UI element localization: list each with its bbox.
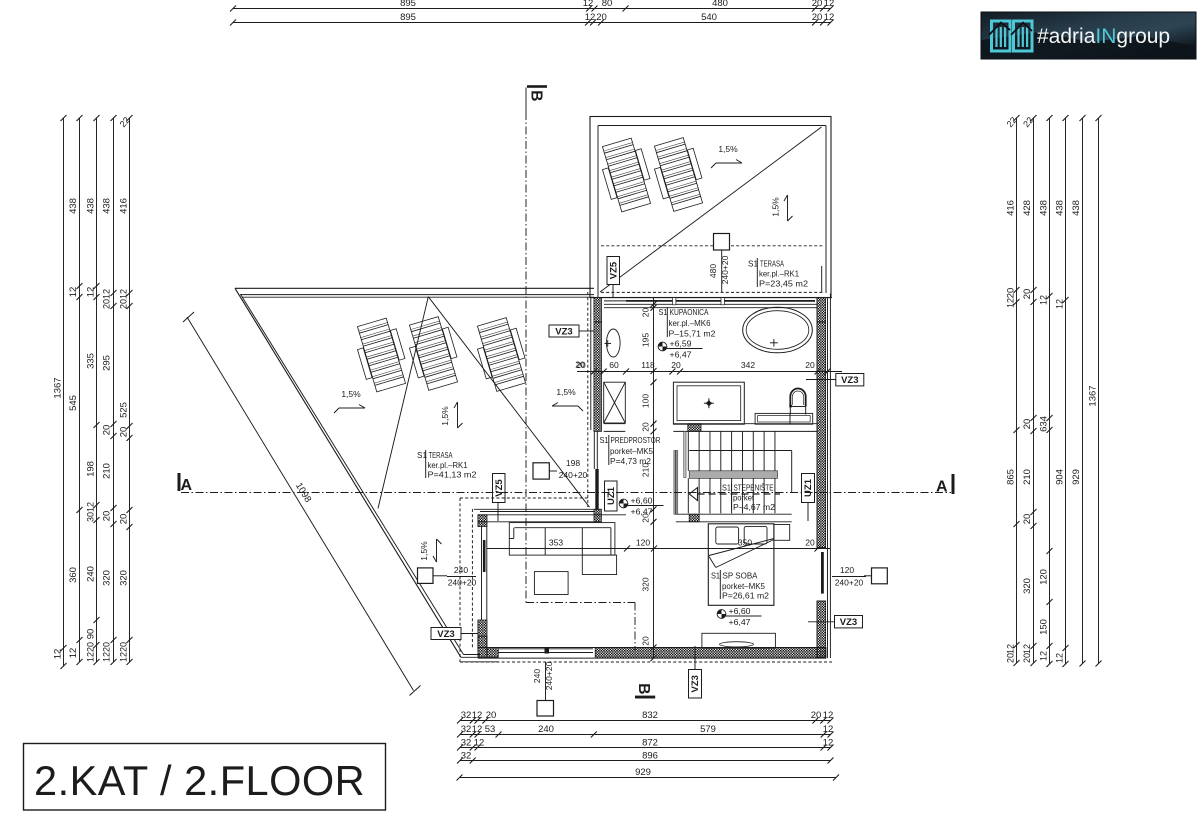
svg-text:210: 210 (1022, 469, 1033, 485)
svg-text:porket–MK5: porket–MK5 (722, 582, 766, 591)
svg-text:120: 120 (1039, 569, 1050, 585)
svg-text:438: 438 (85, 198, 96, 214)
svg-text:20: 20 (576, 360, 586, 370)
svg-text:32: 32 (461, 710, 472, 721)
svg-text:1367: 1367 (52, 377, 63, 398)
svg-text:20: 20 (805, 537, 815, 547)
svg-text:+6,60: +6,60 (631, 496, 653, 506)
svg-text:320: 320 (641, 577, 651, 591)
svg-text:12: 12 (823, 710, 834, 721)
svg-text:+6,60: +6,60 (729, 606, 751, 616)
svg-text:S1: S1 (722, 483, 731, 493)
svg-text:438: 438 (1055, 200, 1066, 216)
svg-text:12: 12 (1039, 295, 1049, 305)
svg-text:865: 865 (1006, 469, 1017, 485)
svg-text:A: A (936, 479, 948, 496)
svg-text:12: 12 (472, 724, 483, 735)
svg-text:20: 20 (641, 422, 651, 432)
svg-text:428: 428 (1022, 200, 1033, 216)
svg-text:12: 12 (1006, 644, 1016, 654)
svg-text:12: 12 (1055, 299, 1065, 309)
svg-text:20: 20 (1006, 653, 1016, 663)
svg-text:12: 12 (85, 287, 96, 298)
svg-text:100: 100 (641, 394, 651, 408)
svg-text:20: 20 (1022, 289, 1033, 300)
svg-text:UZ1: UZ1 (606, 486, 617, 505)
svg-text:20: 20 (102, 425, 113, 436)
svg-text:S1: S1 (711, 571, 720, 581)
svg-text:12: 12 (585, 12, 596, 23)
svg-text:579: 579 (700, 724, 716, 735)
svg-text:12: 12 (1039, 651, 1049, 661)
svg-text:1,5%: 1,5% (419, 541, 429, 561)
svg-text:416: 416 (1006, 200, 1017, 216)
svg-text:12: 12 (85, 502, 95, 512)
svg-text:porket–MK5: porket–MK5 (610, 447, 654, 456)
svg-text:240+20: 240+20 (448, 578, 477, 588)
svg-text:198: 198 (85, 461, 96, 477)
svg-text:UZ1: UZ1 (803, 478, 814, 497)
svg-text:240: 240 (538, 724, 554, 735)
svg-text:#adriaINgroup: #adriaINgroup (1037, 25, 1170, 48)
svg-text:P=4,73 m2: P=4,73 m2 (610, 457, 652, 466)
svg-text:VZ3: VZ3 (841, 375, 858, 386)
svg-text:20: 20 (671, 360, 681, 370)
svg-text:895: 895 (400, 0, 416, 9)
svg-text:KUPAONICA: KUPAONICA (670, 307, 709, 317)
svg-text:240: 240 (454, 565, 468, 575)
svg-text:+6,47: +6,47 (670, 350, 692, 360)
svg-text:ker.pl.–MK6: ker.pl.–MK6 (669, 319, 712, 328)
svg-text:120: 120 (636, 537, 650, 547)
svg-text:80: 80 (602, 0, 613, 9)
svg-text:20: 20 (1022, 653, 1032, 663)
svg-text:480: 480 (708, 264, 718, 278)
svg-text:350: 350 (738, 537, 752, 547)
svg-text:ker.pl.–RK1: ker.pl.–RK1 (759, 270, 800, 279)
svg-text:480: 480 (712, 0, 728, 9)
svg-text:240+20: 240+20 (559, 470, 588, 480)
svg-text:929: 929 (1071, 469, 1082, 485)
svg-text:1367: 1367 (1088, 385, 1099, 406)
svg-text:20: 20 (102, 511, 113, 522)
svg-text:53: 53 (485, 724, 496, 735)
svg-text:+6,59: +6,59 (670, 339, 692, 349)
svg-text:545: 545 (68, 395, 79, 411)
svg-text:32: 32 (461, 724, 472, 735)
svg-text:32: 32 (461, 738, 472, 749)
svg-text:20: 20 (641, 308, 651, 318)
svg-text:90: 90 (85, 629, 96, 640)
svg-text:20: 20 (812, 0, 823, 9)
svg-text:438: 438 (102, 198, 113, 214)
svg-text:832: 832 (642, 710, 658, 721)
svg-text:60: 60 (609, 360, 619, 370)
svg-text:904: 904 (1055, 469, 1066, 485)
svg-text:120: 120 (840, 565, 854, 575)
svg-text:20: 20 (812, 12, 823, 23)
svg-text:2.KAT / 2.FLOOR: 2.KAT / 2.FLOOR (34, 757, 365, 804)
svg-text:PREDPROSTOR: PREDPROSTOR (611, 435, 661, 445)
svg-text:240+20: 240+20 (544, 661, 554, 690)
svg-text:240+20: 240+20 (835, 578, 864, 588)
svg-text:P=23,45 m2: P=23,45 m2 (759, 280, 809, 289)
svg-text:S1: S1 (659, 307, 668, 317)
svg-text:416: 416 (118, 198, 129, 214)
svg-text:VZ3: VZ3 (690, 675, 701, 692)
svg-text:1,5%: 1,5% (556, 387, 576, 397)
svg-text:12: 12 (68, 648, 79, 659)
svg-text:VZ5: VZ5 (494, 479, 505, 497)
svg-text:525: 525 (118, 402, 129, 418)
svg-text:1220: 1220 (85, 642, 95, 662)
svg-text:SP SOBA: SP SOBA (723, 571, 758, 581)
svg-text:20: 20 (118, 427, 129, 438)
svg-text:240: 240 (85, 566, 96, 582)
svg-text:TERASA: TERASA (760, 259, 784, 269)
svg-text:295: 295 (102, 355, 113, 371)
svg-text:150: 150 (1039, 619, 1050, 635)
svg-text:240+20: 240+20 (720, 255, 730, 284)
svg-text:360: 360 (68, 567, 79, 583)
svg-text:1220: 1220 (118, 642, 128, 662)
svg-text:+6,47: +6,47 (631, 507, 653, 517)
svg-text:2012: 2012 (118, 289, 128, 309)
svg-text:P–4,67 m2: P–4,67 m2 (733, 503, 776, 512)
svg-text:B: B (635, 683, 652, 694)
svg-text:320: 320 (102, 570, 113, 586)
svg-text:438: 438 (68, 198, 79, 214)
svg-text:20: 20 (486, 710, 497, 721)
svg-text:20: 20 (118, 514, 129, 525)
svg-text:12: 12 (824, 0, 835, 9)
svg-text:VZ3: VZ3 (555, 326, 572, 337)
svg-text:438: 438 (1071, 200, 1082, 216)
svg-text:540: 540 (701, 12, 717, 23)
svg-text:20: 20 (805, 360, 815, 370)
svg-text:872: 872 (642, 738, 658, 749)
svg-text:P–15,71 m2: P–15,71 m2 (669, 330, 717, 339)
svg-text:342: 342 (741, 360, 755, 370)
svg-text:20: 20 (811, 710, 822, 721)
svg-text:VZ5: VZ5 (608, 261, 619, 279)
svg-text:+6,47: +6,47 (729, 617, 751, 627)
svg-text:32: 32 (461, 751, 472, 762)
svg-text:118: 118 (641, 360, 655, 370)
svg-text:P=41,13 m2: P=41,13 m2 (428, 471, 478, 480)
svg-text:porket: porket (733, 494, 755, 503)
svg-text:12: 12 (472, 710, 483, 721)
svg-text:12: 12 (1006, 298, 1016, 308)
svg-text:VZ3: VZ3 (840, 617, 857, 628)
svg-text:929: 929 (635, 767, 651, 778)
svg-text:P=26,61 m2: P=26,61 m2 (722, 592, 770, 601)
svg-text:S1: S1 (748, 259, 758, 269)
svg-text:20: 20 (1022, 514, 1033, 525)
svg-text:S1: S1 (600, 435, 609, 445)
svg-text:12: 12 (1022, 644, 1032, 654)
svg-text:335: 335 (85, 353, 96, 369)
svg-text:12: 12 (68, 287, 79, 298)
svg-text:320: 320 (118, 570, 129, 586)
svg-text:2012: 2012 (102, 289, 112, 309)
svg-text:1,5%: 1,5% (771, 197, 781, 217)
svg-text:20: 20 (596, 12, 607, 23)
svg-text:240: 240 (532, 669, 542, 683)
svg-text:30: 30 (85, 512, 95, 522)
svg-text:438: 438 (1039, 200, 1050, 216)
svg-text:320: 320 (1022, 578, 1033, 594)
svg-text:198: 198 (566, 458, 580, 468)
svg-text:A: A (181, 477, 193, 494)
svg-text:12: 12 (823, 724, 834, 735)
svg-text:12: 12 (823, 738, 834, 749)
svg-text:1,5%: 1,5% (440, 406, 450, 426)
svg-text:12: 12 (1055, 653, 1065, 663)
svg-text:STEPENIŠTE: STEPENIŠTE (734, 483, 774, 493)
svg-text:1220: 1220 (102, 642, 112, 662)
svg-text:12: 12 (824, 12, 835, 23)
svg-text:1,5%: 1,5% (341, 389, 361, 399)
svg-text:1,5%: 1,5% (718, 144, 738, 154)
svg-text:20: 20 (1022, 419, 1033, 430)
svg-text:895: 895 (400, 12, 416, 23)
svg-text:20: 20 (641, 636, 651, 646)
svg-text:353: 353 (549, 537, 563, 547)
svg-text:ker.pl.–RK1: ker.pl.–RK1 (428, 461, 469, 470)
svg-text:VZ3: VZ3 (437, 629, 454, 640)
svg-text:896: 896 (642, 751, 658, 762)
svg-text:TERASA: TERASA (429, 450, 453, 460)
svg-text:195: 195 (641, 333, 651, 347)
svg-text:210: 210 (102, 463, 113, 479)
svg-text:634: 634 (1039, 416, 1050, 432)
svg-text:20: 20 (1006, 288, 1017, 299)
svg-text:12: 12 (583, 0, 594, 9)
svg-text:12: 12 (474, 738, 485, 749)
svg-text:B: B (528, 90, 545, 101)
